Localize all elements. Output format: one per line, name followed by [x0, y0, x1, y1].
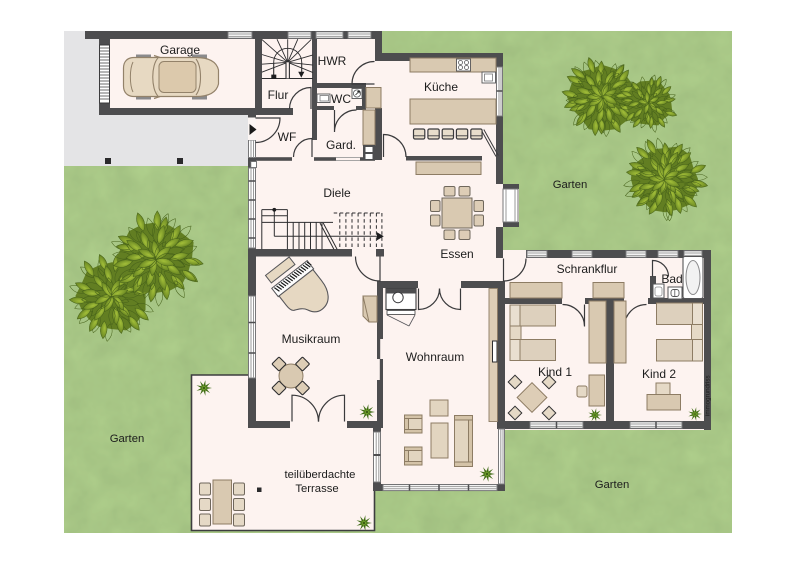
- svg-text:Kind 2: Kind 2: [642, 367, 676, 381]
- svg-text:HWR: HWR: [318, 54, 347, 68]
- svg-text:Garten: Garten: [110, 433, 145, 445]
- svg-text:Wohnraum: Wohnraum: [406, 350, 464, 364]
- svg-text:Flur: Flur: [268, 88, 289, 102]
- svg-text:Schrankflur: Schrankflur: [557, 262, 618, 276]
- svg-text:Gard.: Gard.: [326, 138, 356, 152]
- svg-text:Musikraum: Musikraum: [282, 332, 341, 346]
- svg-text:Garage: Garage: [160, 43, 200, 57]
- svg-text:Essen: Essen: [440, 247, 473, 261]
- svg-text:teilüberdachte: teilüberdachte: [285, 469, 356, 481]
- svg-text:Bad: Bad: [661, 272, 682, 286]
- svg-text:Kind 1: Kind 1: [538, 365, 572, 379]
- svg-text:Diele: Diele: [323, 186, 351, 200]
- svg-text:Garten: Garten: [595, 479, 630, 491]
- svg-text:WC: WC: [331, 92, 351, 106]
- svg-text:Garten: Garten: [553, 179, 588, 191]
- svg-text:WF: WF: [278, 130, 297, 144]
- svg-text:immogrundriss: immogrundriss: [705, 375, 712, 416]
- svg-text:Küche: Küche: [424, 80, 458, 94]
- svg-text:Terrasse: Terrasse: [295, 483, 338, 495]
